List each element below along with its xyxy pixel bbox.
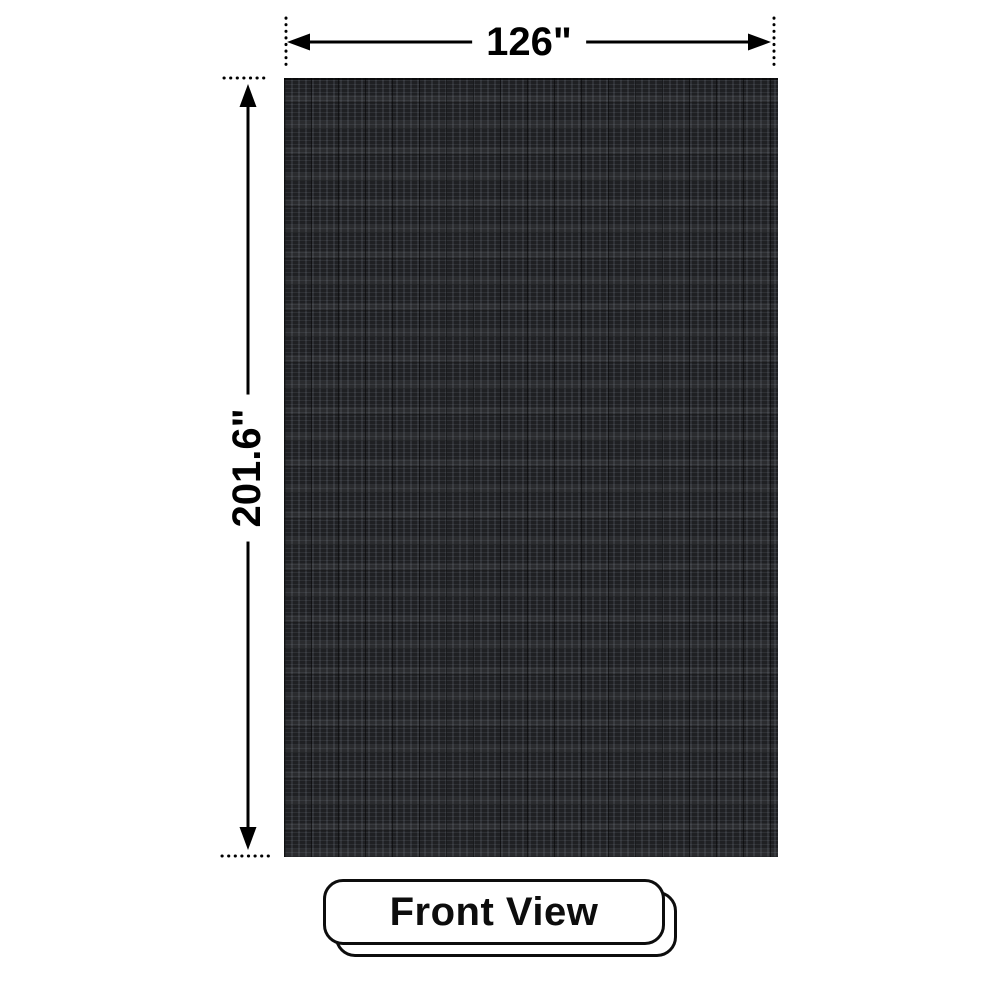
- width-arrowhead-left: [287, 34, 310, 51]
- height-arrowhead-top: [240, 84, 257, 107]
- height-arrowhead-bottom: [240, 827, 257, 850]
- dimension-annotations: [0, 0, 1000, 1000]
- front-view-badge-label: Front View: [390, 890, 599, 935]
- front-view-badge[interactable]: Front View: [323, 879, 665, 945]
- width-arrowhead-right: [748, 34, 771, 51]
- height-dimension-label: 201.6": [225, 394, 269, 541]
- front-view-diagram: 126" 201.6" Front View: [0, 0, 1000, 1000]
- width-dimension-label: 126": [472, 20, 586, 64]
